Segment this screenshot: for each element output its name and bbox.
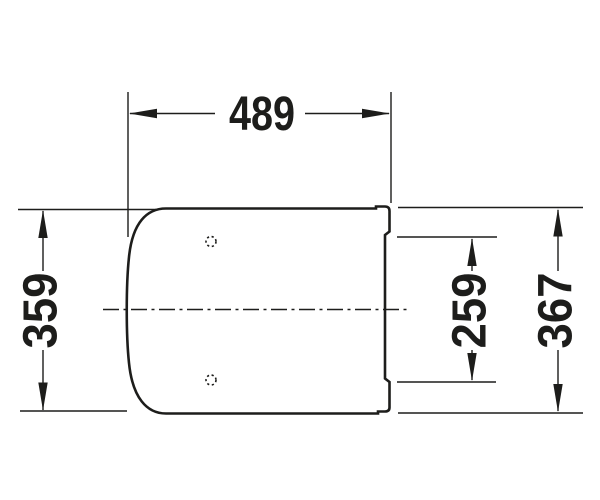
dim-label-top-width: 489: [229, 88, 295, 141]
arrow-up-icon: [553, 209, 562, 237]
arrow-up-icon: [38, 210, 47, 238]
arrow-down-icon: [553, 384, 562, 412]
hinge-hole-bottom: [206, 375, 216, 385]
dimension-right-outer-height: 367: [530, 209, 583, 413]
arrow-right-icon: [362, 109, 390, 118]
drawing-page: 489 359 259 367: [0, 0, 600, 500]
drawing-canvas: 489 359 259 367: [0, 0, 600, 500]
dim-label-right-inner-height: 259: [444, 273, 497, 349]
arrow-down-icon: [467, 353, 476, 381]
arrow-left-icon: [129, 109, 157, 118]
hinge-hole-top: [206, 237, 216, 247]
extension-lines: [18, 92, 583, 413]
arrow-down-icon: [38, 383, 47, 411]
arrow-up-icon: [467, 238, 476, 266]
dimension-top-width: 489: [129, 88, 390, 141]
dimension-right-inner-height: 259: [444, 238, 497, 381]
dimension-left-height: 359: [15, 210, 68, 411]
dim-label-left-height: 359: [15, 273, 68, 349]
dim-label-right-outer-height: 367: [530, 273, 583, 349]
